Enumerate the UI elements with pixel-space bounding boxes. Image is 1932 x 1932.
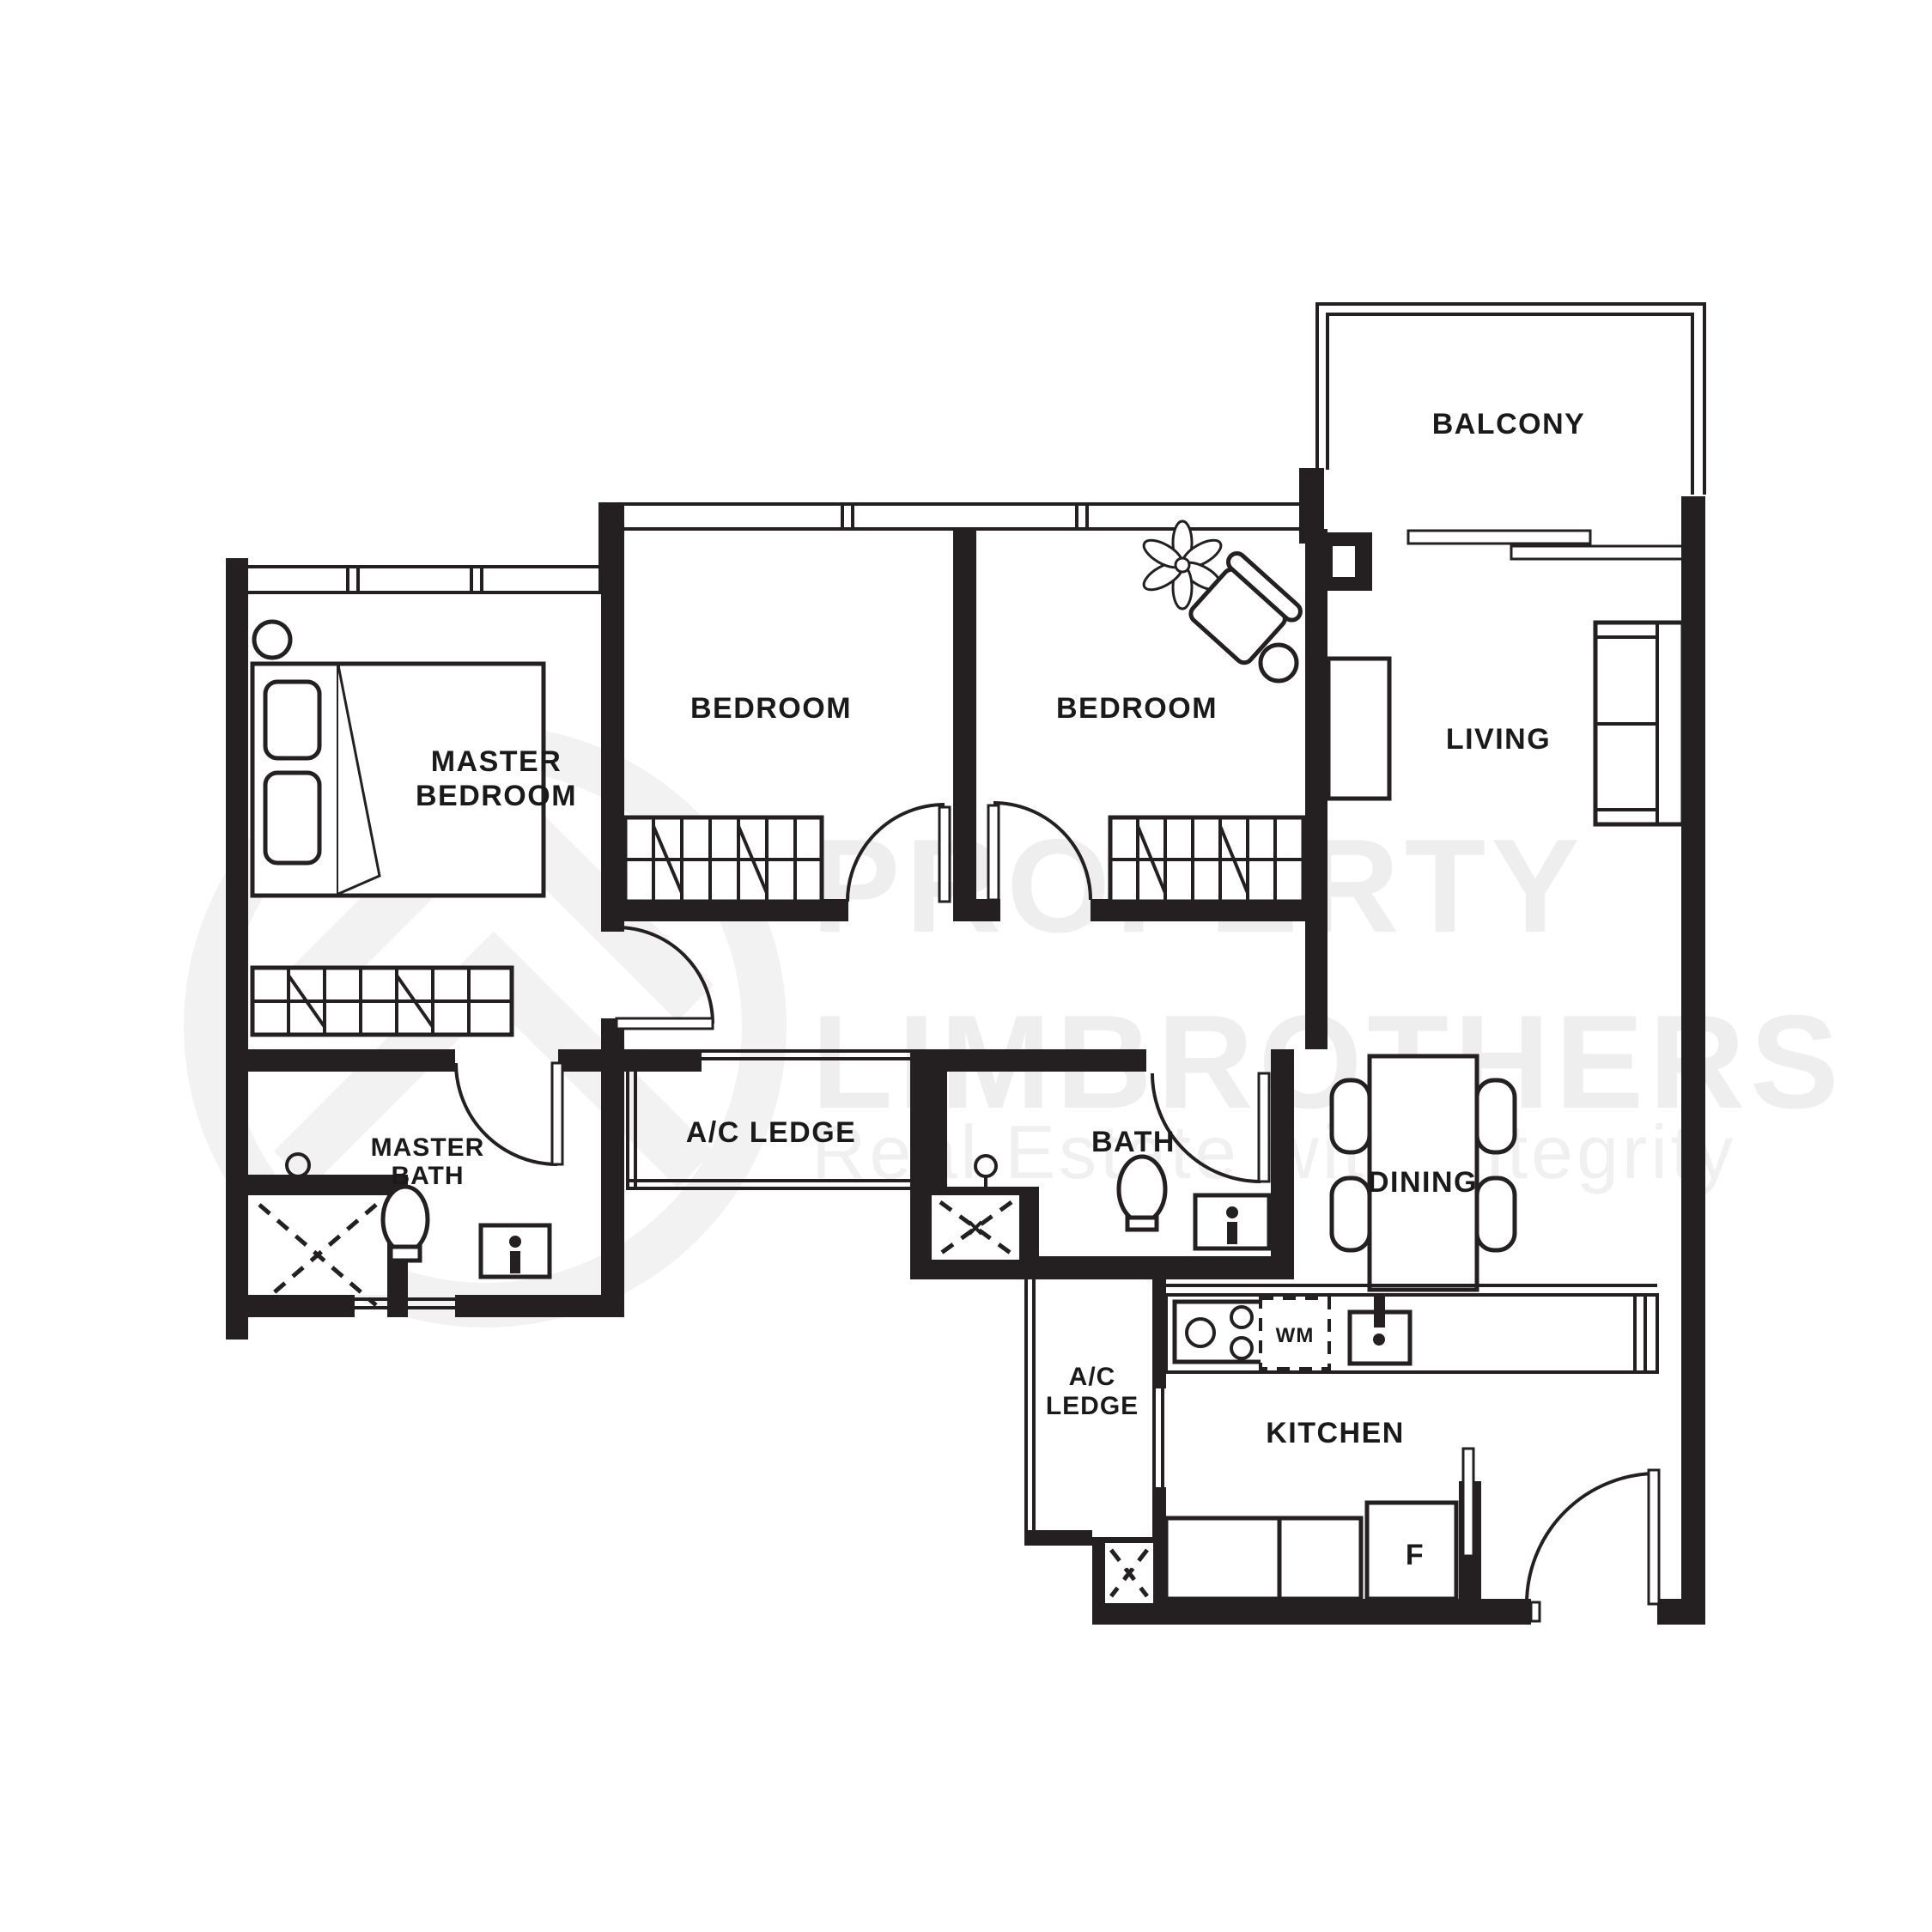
entrance-door xyxy=(1527,1470,1659,1621)
floor-plan-page: PROPERTY LIMBROTHERS Real Estate with In… xyxy=(0,0,1932,1932)
kitchen-sliding-door xyxy=(1463,1449,1473,1556)
window-band-bedrooms xyxy=(611,504,1322,529)
bedroom1-wardrobe xyxy=(625,817,822,902)
kitchen-cabinets xyxy=(1166,1518,1361,1599)
dining-chair xyxy=(1477,1080,1515,1152)
bedroom2-wardrobe xyxy=(1110,817,1303,902)
master-wardrobe xyxy=(252,968,512,1035)
kitchen-window xyxy=(1154,1388,1163,1487)
kitchen-label: KITCHEN xyxy=(1266,1417,1405,1449)
bedside-table xyxy=(254,622,290,658)
washing-machine-label: WM xyxy=(1276,1324,1315,1347)
side-table xyxy=(1261,645,1297,681)
balcony-railing xyxy=(1317,304,1704,495)
floor-plan: PROPERTY LIMBROTHERS Real Estate with In… xyxy=(0,0,1932,1932)
kitchen-sink xyxy=(1350,1293,1410,1364)
master-bath-sink xyxy=(481,1225,550,1277)
master-bedroom-label-line2: BEDROOM xyxy=(416,780,577,812)
bath-sink xyxy=(1195,1195,1269,1249)
living-label: LIVING xyxy=(1446,723,1551,756)
bath-toilet xyxy=(1119,1157,1165,1230)
ac-ledge-lower-label-line2: LEDGE xyxy=(1046,1392,1139,1420)
window-band-master-bedroom xyxy=(226,567,611,592)
tv-console xyxy=(1328,659,1389,799)
dining-chair xyxy=(1477,1178,1515,1250)
master-bedroom-label-line1: MASTER xyxy=(431,745,562,778)
dining-label: DINING xyxy=(1368,1166,1478,1199)
bedroom2-label: BEDROOM xyxy=(1056,692,1218,725)
dining-chair xyxy=(1332,1080,1370,1152)
fridge-label: F xyxy=(1406,1539,1425,1571)
ac-ledge-upper-label: A/C LEDGE xyxy=(686,1116,857,1149)
bedroom1-label: BEDROOM xyxy=(690,692,852,725)
ac-ledge-lower-edge xyxy=(1026,1279,1034,1530)
ac-vent-box xyxy=(1105,1543,1153,1603)
bath-label: BATH xyxy=(1091,1126,1176,1158)
master-bath-toilet xyxy=(383,1187,428,1261)
master-bath-label-line1: MASTER xyxy=(371,1133,485,1162)
cooktop xyxy=(1175,1302,1264,1362)
balcony-sliding-door xyxy=(1408,531,1685,559)
dining-chair xyxy=(1332,1178,1370,1250)
master-bath-label-line2: BATH xyxy=(391,1162,464,1190)
sofa xyxy=(1595,623,1683,824)
ac-ledge-lower-label-line1: A/C xyxy=(1069,1363,1116,1391)
balcony-label: BALCONY xyxy=(1432,408,1586,440)
